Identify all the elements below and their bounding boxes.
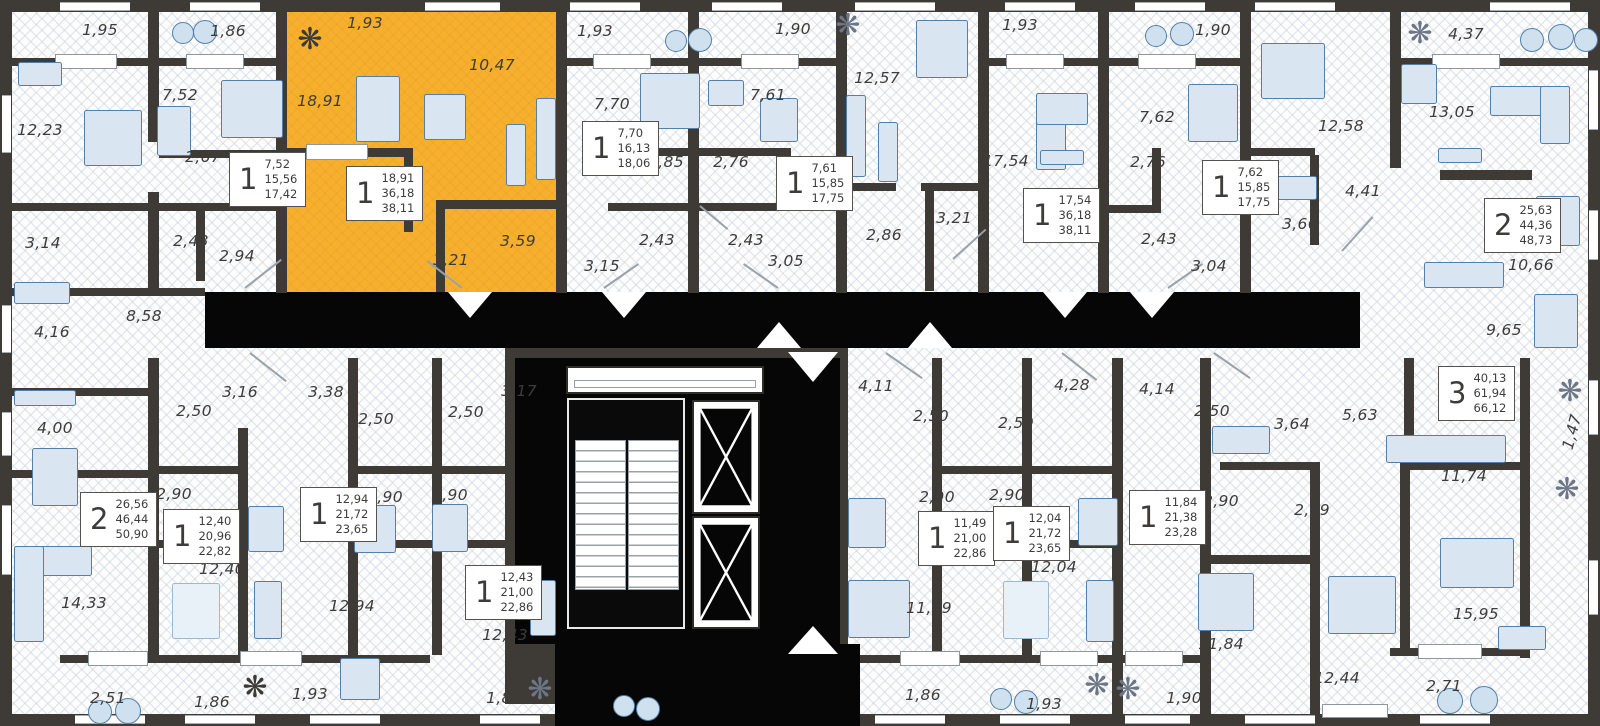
room-area-label: 13,05 <box>1429 103 1475 121</box>
furniture <box>18 62 62 86</box>
room-area-label: 3,59 <box>500 232 536 250</box>
corridor-void <box>770 358 840 656</box>
wall <box>148 192 159 292</box>
window-sill-icon <box>1589 560 1598 615</box>
apartment-info-card[interactable]: 226,5646,4450,90 <box>80 492 157 547</box>
window-icon <box>1006 54 1064 69</box>
room-area-label: 1,90 <box>775 20 811 38</box>
room-area-label: 8,58 <box>126 307 162 325</box>
window-icon <box>1432 54 1500 69</box>
plant-icon: ❋ <box>1084 671 1109 701</box>
apartment-area-value: 23,65 <box>335 522 368 537</box>
wall <box>442 466 505 474</box>
apartment-areas: 26,5646,4450,90 <box>115 497 148 542</box>
apartment-area-value: 11,49 <box>953 516 986 531</box>
apartment-area-value: 17,54 <box>1058 193 1091 208</box>
apartment-area-value: 17,75 <box>811 191 844 206</box>
furniture <box>424 94 466 140</box>
apartment-areas: 11,8421,3823,28 <box>1164 495 1197 540</box>
apartment-areas: 12,4321,0022,86 <box>500 570 533 615</box>
apartment-area-value: 15,56 <box>264 172 297 187</box>
apartment-rooms-count: 1 <box>356 179 374 208</box>
chair-icon <box>172 22 194 44</box>
room-area-label: 1,93 <box>347 14 383 32</box>
apartment-area-value: 7,52 <box>264 157 297 172</box>
room-area-label: 3,14 <box>25 234 61 252</box>
apartment-area-value: 12,40 <box>198 514 231 529</box>
furniture <box>1198 573 1254 631</box>
window-sill-icon <box>1420 715 1490 724</box>
window-icon <box>186 54 244 69</box>
chair-icon <box>613 695 635 717</box>
room-area-label: 10,47 <box>469 56 515 74</box>
room-area-label: 2,90 <box>989 486 1025 504</box>
apartment-info-card[interactable]: 118,9136,1838,11 <box>346 166 423 221</box>
apartment-area-value: 22,86 <box>953 546 986 561</box>
room-area-label: 2,50 <box>998 414 1034 432</box>
window-sill-icon <box>570 2 640 11</box>
apartment-area-value: 16,13 <box>617 141 650 156</box>
apartment-area-value: 50,90 <box>115 527 148 542</box>
window-sill-icon <box>1125 715 1190 724</box>
apartment-rooms-count: 1 <box>928 524 946 553</box>
apartment-area-value: 12,94 <box>335 492 368 507</box>
room-area-label: 4,37 <box>1448 25 1484 43</box>
stairs <box>567 398 685 629</box>
apartment-area-value: 38,11 <box>1058 223 1091 238</box>
furniture <box>14 282 70 304</box>
furniture <box>1086 580 1114 642</box>
furniture <box>1438 148 1482 163</box>
apartment-areas: 11,4921,0022,86 <box>953 516 986 561</box>
apartment-areas: 7,6115,8517,75 <box>811 161 844 206</box>
plant-icon: ❋ <box>1554 475 1579 505</box>
room-area-label: 2,90 <box>919 488 955 506</box>
wall <box>925 191 934 291</box>
apartment-areas: 7,7016,1318,06 <box>617 126 650 171</box>
apartment-info-card[interactable]: 112,4321,0022,86 <box>465 565 542 620</box>
apartment-area-value: 7,62 <box>1237 165 1270 180</box>
apartment-area-value: 44,36 <box>1519 218 1552 233</box>
corridor-void <box>555 644 860 726</box>
apartment-info-card[interactable]: 117,5436,1838,11 <box>1023 188 1100 243</box>
furniture <box>1498 626 1546 650</box>
wall <box>699 203 779 211</box>
window-sill-icon <box>310 715 380 724</box>
room-area-label: 1,93 <box>1002 16 1038 34</box>
window-sill-icon <box>2 505 11 575</box>
room-area-label: 11,74 <box>1441 467 1487 485</box>
room-area-label: 3,17 <box>501 382 537 400</box>
apartment-info-card[interactable]: 17,7016,1318,06 <box>582 121 659 176</box>
stair-flight <box>575 440 626 590</box>
apartment-area-value: 18,91 <box>381 171 414 186</box>
apartment-rooms-count: 1 <box>1033 201 1051 230</box>
plant-icon: ❋ <box>242 673 267 703</box>
window-icon <box>240 651 302 666</box>
furniture <box>1036 93 1088 125</box>
room-area-label: 14,33 <box>61 594 107 612</box>
wall <box>1220 462 1310 470</box>
apartment-areas: 12,4020,9622,82 <box>198 514 231 559</box>
furniture <box>14 390 76 406</box>
room-area-label: 17,54 <box>983 152 1029 170</box>
elevator-icon <box>692 516 760 629</box>
apartment-area-value: 7,61 <box>811 161 844 176</box>
room-area-label: 3,66 <box>1282 215 1318 233</box>
furniture <box>1424 262 1504 288</box>
room-area-label: 2,90 <box>1203 492 1239 510</box>
apartment-area-value: 36,18 <box>381 186 414 201</box>
window-sill-icon <box>2 412 11 456</box>
window-sill-icon <box>875 715 945 724</box>
apartment-area-value: 12,43 <box>500 570 533 585</box>
apartment-area-value: 21,38 <box>1164 510 1197 525</box>
furniture <box>536 98 556 180</box>
apartment-area-value: 15,85 <box>811 176 844 191</box>
furniture <box>1328 576 1396 634</box>
room-area-label: 2,50 <box>176 402 212 420</box>
apartment-rooms-count: 1 <box>786 169 804 198</box>
furniture <box>1212 426 1270 454</box>
room-area-label: 2,94 <box>219 247 255 265</box>
room-area-label: 11,49 <box>906 599 952 617</box>
furniture <box>1003 581 1049 639</box>
window-sill-icon <box>1589 380 1598 435</box>
apartment-area-value: 66,12 <box>1473 401 1506 416</box>
room-area-label: 2,50 <box>358 410 394 428</box>
window-sill-icon <box>1589 70 1598 130</box>
room-area-label: 1,90 <box>1195 21 1231 39</box>
room-area-label: 7,62 <box>1139 108 1175 126</box>
window-icon <box>593 54 651 69</box>
furniture <box>254 581 282 639</box>
apartment-areas: 17,5436,1838,11 <box>1058 193 1091 238</box>
chair-icon <box>1520 28 1544 52</box>
window-sill-icon <box>1589 210 1598 260</box>
wall <box>921 183 978 191</box>
apartment-info-card[interactable]: 112,9421,7223,65 <box>300 487 377 542</box>
wall <box>942 466 1022 474</box>
apartment-info-card[interactable]: 17,6215,8517,75 <box>1202 160 1279 215</box>
room-area-label: 3,21 <box>433 251 469 269</box>
apartment-area-value: 11,84 <box>1164 495 1197 510</box>
wall <box>358 466 432 474</box>
wall <box>556 12 567 293</box>
window-sill-icon <box>1005 2 1075 11</box>
furniture <box>1534 294 1578 348</box>
apartment-rooms-count: 1 <box>173 522 191 551</box>
furniture <box>848 580 910 638</box>
apartment-area-value: 22,86 <box>500 600 533 615</box>
window-sill-icon <box>1245 715 1315 724</box>
room-area-label: 4,11 <box>858 377 894 395</box>
plant-icon: ❋ <box>297 25 322 55</box>
window-sill-icon <box>1135 2 1205 11</box>
apartment-rooms-count: 1 <box>1003 519 1021 548</box>
apartment-rooms-count: 1 <box>592 134 610 163</box>
furniture <box>1261 43 1325 99</box>
apartment-rooms-count: 1 <box>475 578 493 607</box>
room-area-label: 1,93 <box>1026 695 1062 713</box>
furniture <box>32 448 78 506</box>
wall <box>1109 205 1161 213</box>
room-area-label: 3,21 <box>936 209 972 227</box>
furniture <box>848 498 886 548</box>
room-area-label: 3,04 <box>1191 257 1227 275</box>
plant-icon: ❋ <box>835 11 860 41</box>
room-area-label: 12,58 <box>1318 117 1364 135</box>
room-area-label: 15,95 <box>1453 605 1499 623</box>
room-area-label: 2,43 <box>173 232 209 250</box>
furniture <box>172 583 220 639</box>
furniture <box>1386 435 1506 463</box>
wall <box>1440 170 1532 180</box>
apartment-area-value: 38,11 <box>381 201 414 216</box>
room-area-label: 1,86 <box>210 22 246 40</box>
window-sill-icon <box>425 2 500 11</box>
room-area-label: 2,86 <box>866 226 902 244</box>
plant-icon: ❋ <box>1407 19 1432 49</box>
room-area-label: 2,90 <box>432 486 468 504</box>
apartment-rooms-count: 3 <box>1448 379 1466 408</box>
apartment-area-value: 23,28 <box>1164 525 1197 540</box>
apartment-rooms-count: 1 <box>239 165 257 194</box>
furniture <box>1401 64 1437 104</box>
window-icon <box>88 651 148 666</box>
room-area-label: 2,50 <box>448 403 484 421</box>
apartment-area-value: 20,96 <box>198 529 231 544</box>
furniture <box>356 76 400 142</box>
apartment-area-value: 17,75 <box>1237 195 1270 210</box>
furniture <box>760 98 798 142</box>
apartment-areas: 7,6215,8517,75 <box>1237 165 1270 210</box>
apartment-area-value: 21,00 <box>953 531 986 546</box>
plant-icon: ❋ <box>1115 675 1140 705</box>
window-icon <box>306 144 368 160</box>
window-icon <box>1418 644 1482 659</box>
room-area-label: 1,95 <box>82 21 118 39</box>
window-sill-icon <box>712 2 782 11</box>
apartment-areas: 40,1361,9466,12 <box>1473 371 1506 416</box>
chair-icon <box>1470 686 1498 714</box>
room-area-label: 7,52 <box>162 86 198 104</box>
apartment-info-card[interactable]: 111,8421,3823,28 <box>1129 490 1206 545</box>
apartment-area-value: 15,85 <box>1237 180 1270 195</box>
wall <box>436 200 556 209</box>
wall <box>1520 358 1530 658</box>
apartment-area-value: 21,72 <box>335 507 368 522</box>
room-area-label: 12,23 <box>17 121 63 139</box>
apartment-area-value: 18,06 <box>617 156 650 171</box>
room-area-label: 9,65 <box>1486 321 1522 339</box>
plant-icon: ❋ <box>527 675 552 705</box>
window-sill-icon <box>2 305 11 353</box>
wall <box>148 466 238 474</box>
apartment-areas: 12,9421,7223,65 <box>335 492 368 537</box>
room-area-label: 2,76 <box>713 153 749 171</box>
room-area-label: 2,90 <box>156 485 192 503</box>
apartment-area-value: 21,72 <box>1028 526 1061 541</box>
apartment-area-value: 23,65 <box>1028 541 1061 556</box>
room-area-label: 1,90 <box>1166 689 1202 707</box>
room-area-label: 11,84 <box>1198 635 1244 653</box>
apartment-info-card[interactable]: 17,5215,5617,42 <box>229 152 306 207</box>
wall <box>1400 462 1410 654</box>
apartment-area-value: 21,00 <box>500 585 533 600</box>
window-sill-icon <box>1000 715 1070 724</box>
room-area-label: 1,93 <box>292 685 328 703</box>
apartment-areas: 7,5215,5617,42 <box>264 157 297 202</box>
room-area-label: 12,94 <box>329 597 375 615</box>
furniture <box>1188 84 1238 142</box>
chair-icon <box>1548 24 1574 50</box>
apartment-area-value: 48,73 <box>1519 233 1552 248</box>
window-sill-icon <box>1255 2 1335 11</box>
apartment-area-value: 36,18 <box>1058 208 1091 223</box>
apartment-area-value: 12,04 <box>1028 511 1061 526</box>
window-sill-icon <box>2 95 11 153</box>
room-area-label: 1,86 <box>194 693 230 711</box>
room-area-label: 2,50 <box>1194 402 1230 420</box>
room-area-label: 7,70 <box>594 95 630 113</box>
apartment-info-card[interactable]: 112,4020,9622,82 <box>163 509 240 564</box>
chair-icon <box>990 688 1012 710</box>
plant-icon: ❋ <box>1557 377 1582 407</box>
room-area-label: 4,00 <box>37 419 73 437</box>
furniture <box>1040 150 1084 165</box>
apartment-info-card[interactable]: 225,6344,3648,73 <box>1484 198 1561 253</box>
room-area-label: 2,71 <box>1426 677 1462 695</box>
room-area-label: 1,86 <box>486 689 522 707</box>
window-icon <box>55 54 117 69</box>
room-area-label: 2,43 <box>1141 230 1177 248</box>
apartment-area-value: 17,42 <box>264 187 297 202</box>
wall <box>12 203 148 211</box>
room-area-label: 4,16 <box>34 323 70 341</box>
furniture <box>506 124 526 186</box>
room-area-label: 1,86 <box>905 686 941 704</box>
window-icon <box>1040 651 1098 666</box>
furniture <box>14 546 44 642</box>
apartment-info-card[interactable]: 340,1361,9466,12 <box>1438 366 1515 421</box>
room-area-label: 2,76 <box>1130 153 1166 171</box>
apartment-area-value: 40,13 <box>1473 371 1506 386</box>
window-icon <box>1138 54 1196 69</box>
ventilation-shaft <box>566 366 764 394</box>
apartment-area-value: 46,44 <box>115 512 148 527</box>
room-area-label: 12,44 <box>1314 669 1360 687</box>
wall <box>1098 12 1109 293</box>
furniture <box>878 122 898 182</box>
furniture <box>916 20 968 78</box>
furniture <box>248 506 284 552</box>
room-area-label: 18,91 <box>297 92 343 110</box>
window-sill-icon <box>60 2 130 11</box>
window-sill-icon <box>190 2 260 11</box>
window-sill-icon <box>480 715 540 724</box>
furniture <box>221 80 283 138</box>
apartment-rooms-count: 1 <box>310 500 328 529</box>
furniture <box>1540 86 1570 144</box>
wall <box>1032 466 1112 474</box>
room-area-label: 3,15 <box>584 257 620 275</box>
room-area-label: 3,05 <box>768 252 804 270</box>
window-icon <box>900 651 960 666</box>
room-area-label: 4,14 <box>1139 380 1175 398</box>
apartment-areas: 12,0421,7223,65 <box>1028 511 1061 556</box>
elevator-icon <box>692 400 760 514</box>
wall <box>608 203 688 211</box>
apartment-area-value: 22,82 <box>198 544 231 559</box>
window-icon <box>1125 651 1183 666</box>
furniture <box>1078 498 1118 546</box>
room-area-label: 2,43 <box>728 231 764 249</box>
room-area-label: 5,63 <box>1342 406 1378 424</box>
chair-icon <box>688 28 712 52</box>
room-area-label: 1,93 <box>577 22 613 40</box>
chair-icon <box>665 30 687 52</box>
room-area-label: 4,41 <box>1345 182 1381 200</box>
wall <box>1240 148 1315 156</box>
window-icon <box>1322 704 1388 718</box>
room-area-label: 7,61 <box>750 86 786 104</box>
window-icon <box>741 54 799 69</box>
wall <box>436 200 445 292</box>
room-area-label: 12,43 <box>482 626 528 644</box>
apartment-area-value: 7,70 <box>617 126 650 141</box>
apartment-area-value: 25,63 <box>1519 203 1552 218</box>
chair-icon <box>1170 22 1194 46</box>
apartment-rooms-count: 2 <box>90 505 108 534</box>
furniture <box>432 504 468 552</box>
room-area-label: 12,57 <box>854 69 900 87</box>
room-area-label: 2,51 <box>90 689 126 707</box>
chair-icon <box>1145 25 1167 47</box>
wall <box>1390 12 1401 168</box>
apartment-info-card[interactable]: 17,6115,8517,75 <box>776 156 853 211</box>
room-area-label: 2,50 <box>913 407 949 425</box>
room-area-label: 3,64 <box>1274 415 1310 433</box>
room-area-label: 10,66 <box>1508 256 1554 274</box>
apartment-areas: 25,6344,3648,73 <box>1519 203 1552 248</box>
furniture <box>708 80 744 106</box>
floor-plan: ❋❋❋❋❋❋❋❋❋ 1,951,861,9310,471,931,901,931… <box>0 0 1600 726</box>
window-sill-icon <box>185 715 255 724</box>
furniture <box>84 110 142 166</box>
room-area-label: 2,67 <box>185 148 221 166</box>
room-area-label: 3,38 <box>308 383 344 401</box>
apartment-area-value: 26,56 <box>115 497 148 512</box>
room-area-label: 3,16 <box>222 383 258 401</box>
apartment-areas: 18,9136,1838,11 <box>381 171 414 216</box>
apartment-info-card[interactable]: 111,4921,0022,86 <box>918 511 995 566</box>
apartment-info-card[interactable]: 112,0421,7223,65 <box>993 506 1070 561</box>
window-sill-icon <box>1490 2 1570 11</box>
stair-flight <box>628 440 679 590</box>
apartment-rooms-count: 1 <box>1139 503 1157 532</box>
chair-icon <box>636 697 660 721</box>
wall <box>1200 555 1310 564</box>
chair-icon <box>1574 28 1598 52</box>
apartment-rooms-count: 2 <box>1494 211 1512 240</box>
wall <box>688 12 699 293</box>
furniture <box>340 658 380 700</box>
room-area-label: 2,43 <box>639 231 675 249</box>
window-sill-icon <box>855 2 935 11</box>
apartment-rooms-count: 1 <box>1212 173 1230 202</box>
room-area-label: 2,89 <box>1294 501 1330 519</box>
